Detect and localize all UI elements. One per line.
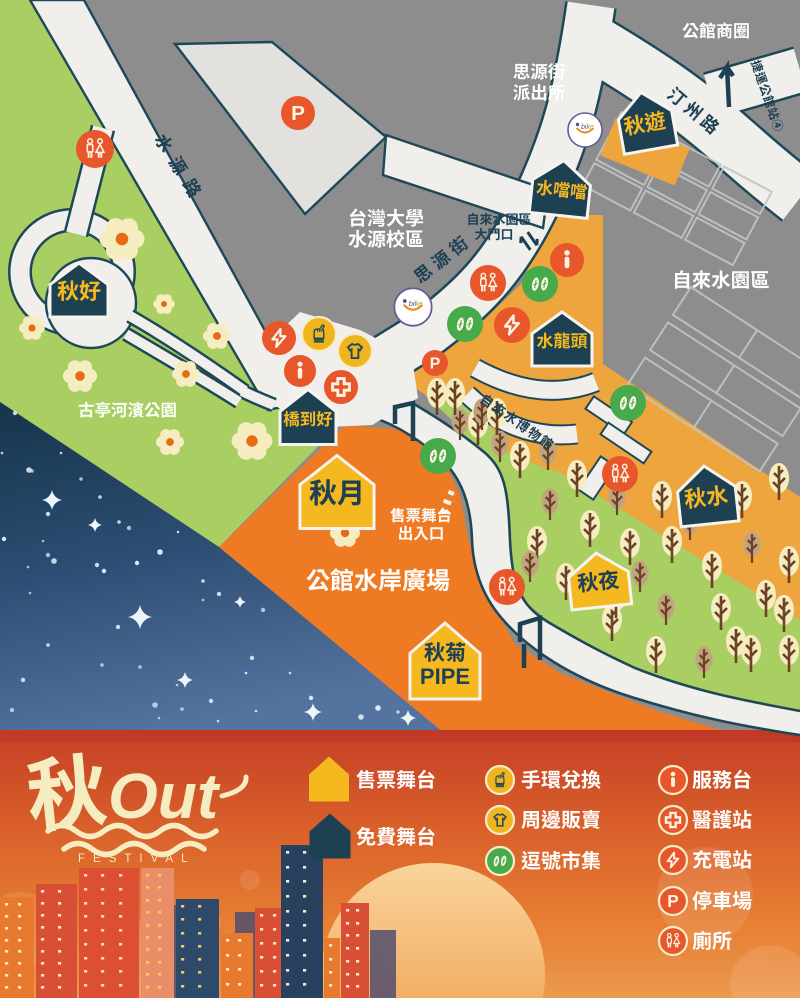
svg-text:Out: Out — [108, 760, 221, 832]
svg-text:PIPE: PIPE — [420, 664, 470, 689]
svg-text:FESTIVAL: FESTIVAL — [78, 853, 195, 865]
